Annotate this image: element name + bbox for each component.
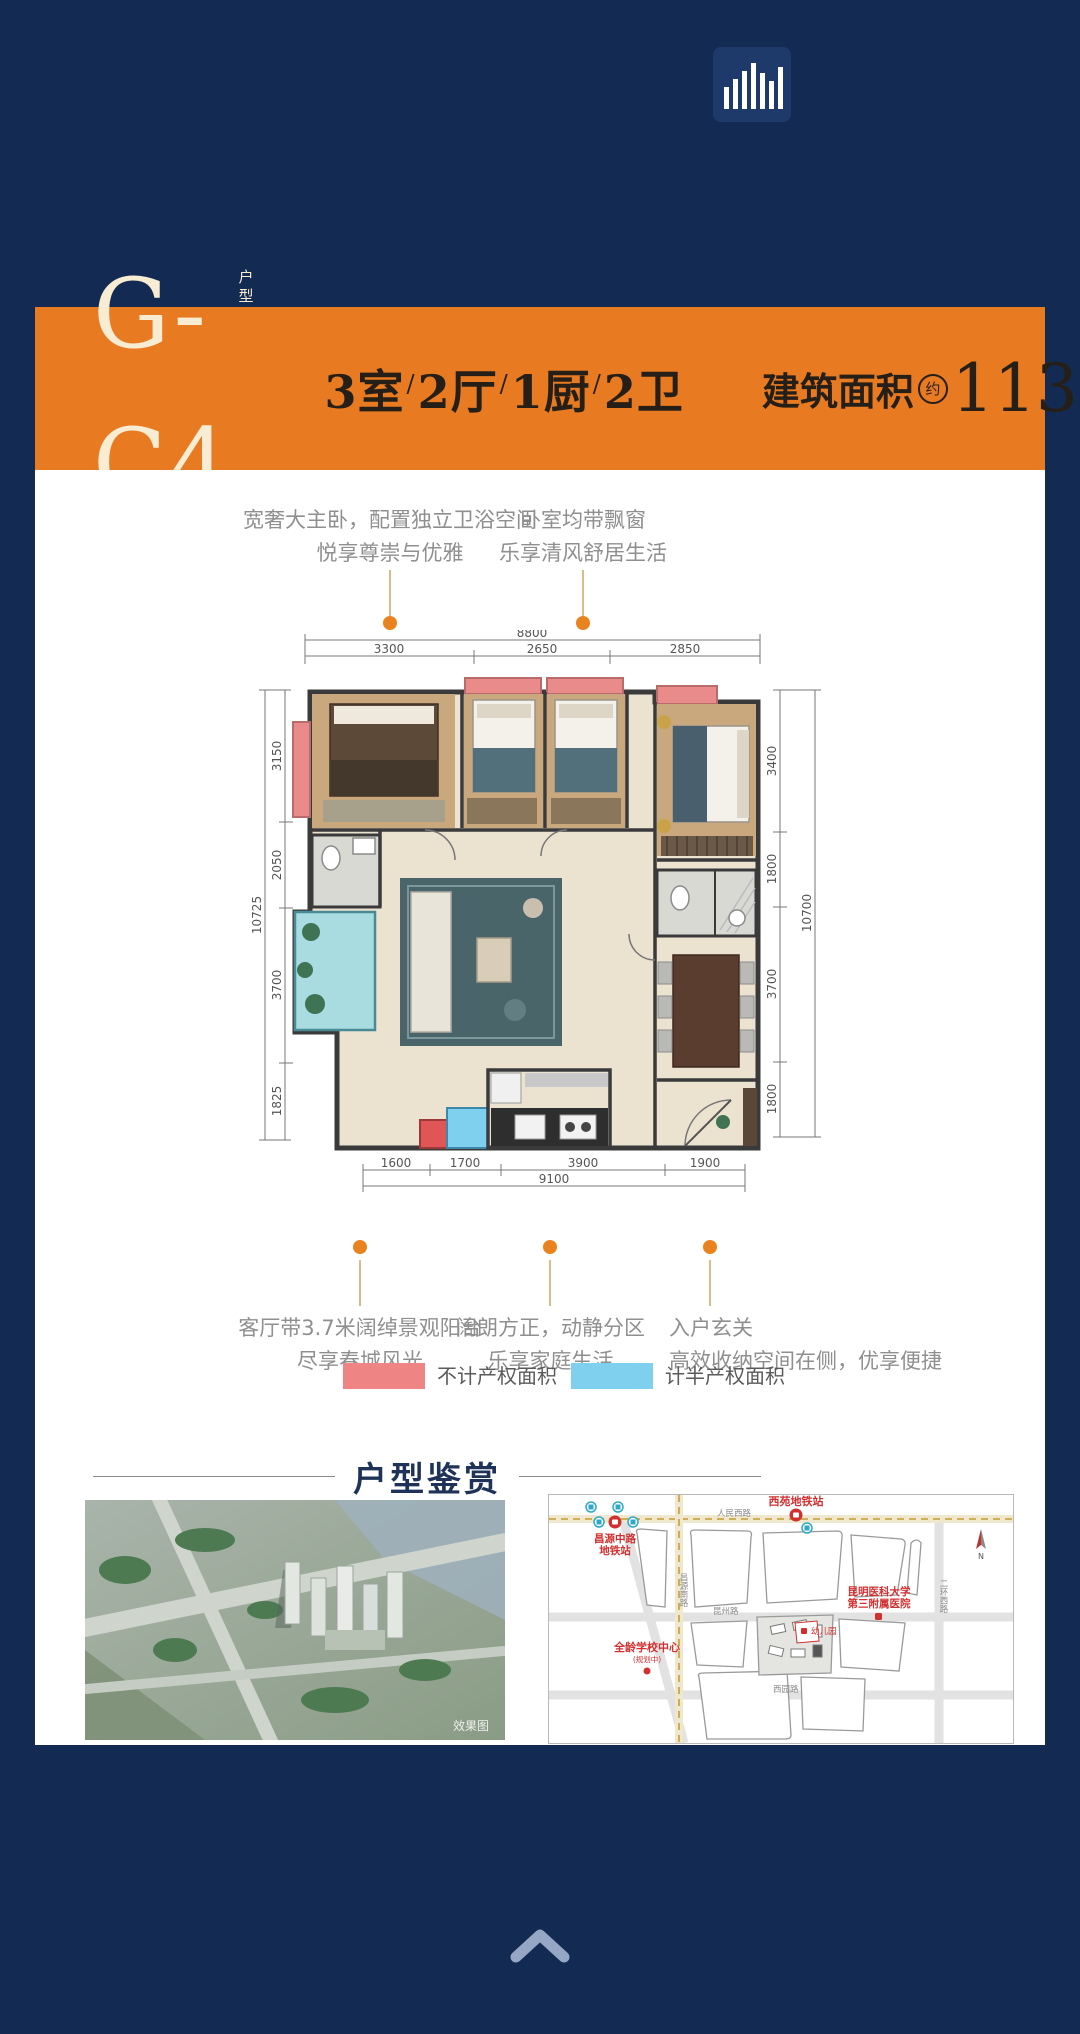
content-card: 宽奢大主卧，配置独立卫浴空间 悦享尊崇与优雅 卧室均带飘窗 乐享清风舒居生活 [35, 470, 1045, 1745]
metro-icon [609, 1516, 622, 1529]
svg-text:3700: 3700 [270, 970, 284, 1001]
road-label: 二环西路 [938, 1579, 948, 1614]
blue-utility-area [447, 1108, 488, 1148]
aerial-render-image: 效果图 [85, 1500, 505, 1740]
kitchen [491, 1073, 608, 1146]
master-bed [323, 704, 445, 822]
svg-text:1600: 1600 [381, 1156, 412, 1170]
callout-leader-line [709, 1260, 711, 1306]
callout-leader-line [359, 1260, 361, 1306]
unit-banner: G-C4 户型 3室/2厅/1厨/2卫 建筑面积 约 113m 2 [35, 307, 1045, 470]
location-map: 西苑地铁站 昌源中路 地铁站 昆明医科大学 第三附属医院 [548, 1494, 1014, 1744]
legend-blue-swatch [571, 1363, 653, 1389]
school-note: (规划中) [633, 1654, 661, 1664]
slash: / [498, 370, 511, 398]
road-label: 昆州路 [713, 1606, 739, 1617]
metro-icon [790, 1509, 803, 1522]
svg-text:3900: 3900 [568, 1156, 599, 1170]
svg-text:10700: 10700 [800, 894, 814, 932]
area-label: 建筑面积 [762, 361, 914, 416]
svg-text:2650: 2650 [527, 642, 558, 656]
legend-red-swatch [343, 1363, 425, 1389]
flyer-page: G-C4 户型 3室/2厅/1厨/2卫 建筑面积 约 113m 2 宽奢大主卧，… [0, 0, 1080, 2034]
hospital-label: 昆明医科大学 [848, 1585, 911, 1598]
callout-dot [703, 1240, 717, 1254]
svg-text:3300: 3300 [374, 642, 405, 656]
unit-area: 建筑面积 约 113m 2 [762, 356, 1080, 422]
station-label: 昌源中路 [594, 1532, 636, 1545]
baths-count: 2卫 [604, 365, 684, 419]
equalizer-bars-icon [713, 47, 791, 122]
rooms-count: 3室 [325, 365, 405, 419]
brand-logo [713, 47, 791, 122]
callout-dot [383, 616, 397, 630]
road-label: 昌源南路 [678, 1573, 688, 1608]
slash: / [405, 370, 418, 398]
svg-text:1700: 1700 [450, 1156, 481, 1170]
callout-dot [576, 616, 590, 630]
svg-text:1825: 1825 [270, 1086, 284, 1117]
callout-text: 卧室均带飘窗 [468, 504, 698, 537]
legend-blue-label: 计半产权面积 [665, 1363, 785, 1389]
station-label: 地铁站 [599, 1544, 631, 1557]
svg-text:10725: 10725 [250, 896, 264, 934]
callout-bay-windows: 卧室均带飘窗 乐享清风舒居生活 [468, 504, 698, 569]
scroll-up-chevron[interactable] [508, 1925, 572, 1965]
kindergarten-label: 幼儿园 [811, 1626, 837, 1637]
callout-dot [353, 1240, 367, 1254]
red-flue-area [420, 1120, 447, 1148]
svg-text:3400: 3400 [765, 746, 779, 777]
svg-text:1800: 1800 [765, 1084, 779, 1115]
area-value: 113m [952, 356, 1080, 422]
render-watermark: 效果图 [453, 1718, 489, 1733]
station-label: 西苑地铁站 [769, 1495, 824, 1508]
road-label: 人民西路 [717, 1508, 752, 1519]
svg-text:2850: 2850 [670, 642, 701, 656]
svg-text:9100: 9100 [539, 1172, 570, 1186]
callout-text: 阔朗方正，动静分区 [423, 1312, 678, 1345]
location-map-art: 西苑地铁站 昌源中路 地铁站 昆明医科大学 第三附属医院 [549, 1495, 1013, 1743]
header-rule [519, 1476, 761, 1477]
callout-leader-line [582, 570, 584, 616]
floorplan-body [293, 678, 758, 1148]
chevron-up-icon [508, 1925, 572, 1965]
unit-layout: 3室/2厅/1厨/2卫 [325, 356, 684, 422]
header-rule [93, 1476, 335, 1477]
gallery-title: 户型鉴赏 [353, 1452, 501, 1501]
hospital-label: 第三附属医院 [848, 1597, 911, 1610]
compass-label: N [978, 1552, 984, 1561]
svg-text:3150: 3150 [270, 741, 284, 772]
svg-text:2050: 2050 [270, 850, 284, 881]
hospital-marker [875, 1613, 882, 1620]
svg-text:8800: 8800 [517, 630, 548, 640]
callout-text: 入户玄关 [669, 1312, 999, 1345]
callout-leader-line [389, 570, 391, 616]
kindergarten-marker [801, 1628, 807, 1634]
svg-text:1900: 1900 [690, 1156, 721, 1170]
school-marker [644, 1668, 651, 1675]
halls-count: 2厅 [418, 365, 498, 419]
unit-tag: 户型 [236, 269, 257, 307]
aerial-render-art: 效果图 [85, 1500, 505, 1740]
floorplan-drawing: 8800 3300 2650 2850 10725 3150 2050 3700… [215, 630, 875, 1240]
slash: / [591, 370, 604, 398]
callout-dot [543, 1240, 557, 1254]
svg-text:3700: 3700 [765, 969, 779, 1000]
kitchens-count: 1厨 [511, 365, 591, 419]
callout-text: 乐享清风舒居生活 [468, 537, 698, 570]
callout-leader-line [549, 1260, 551, 1306]
legend-red-label: 不计产权面积 [437, 1363, 557, 1389]
school-label: 全龄学校中心 [613, 1640, 680, 1654]
road-label: 西园路 [773, 1684, 799, 1695]
living-room [400, 878, 562, 1046]
dining-area [658, 955, 754, 1067]
svg-text:1800: 1800 [765, 854, 779, 885]
approx-circle: 约 [918, 374, 948, 404]
